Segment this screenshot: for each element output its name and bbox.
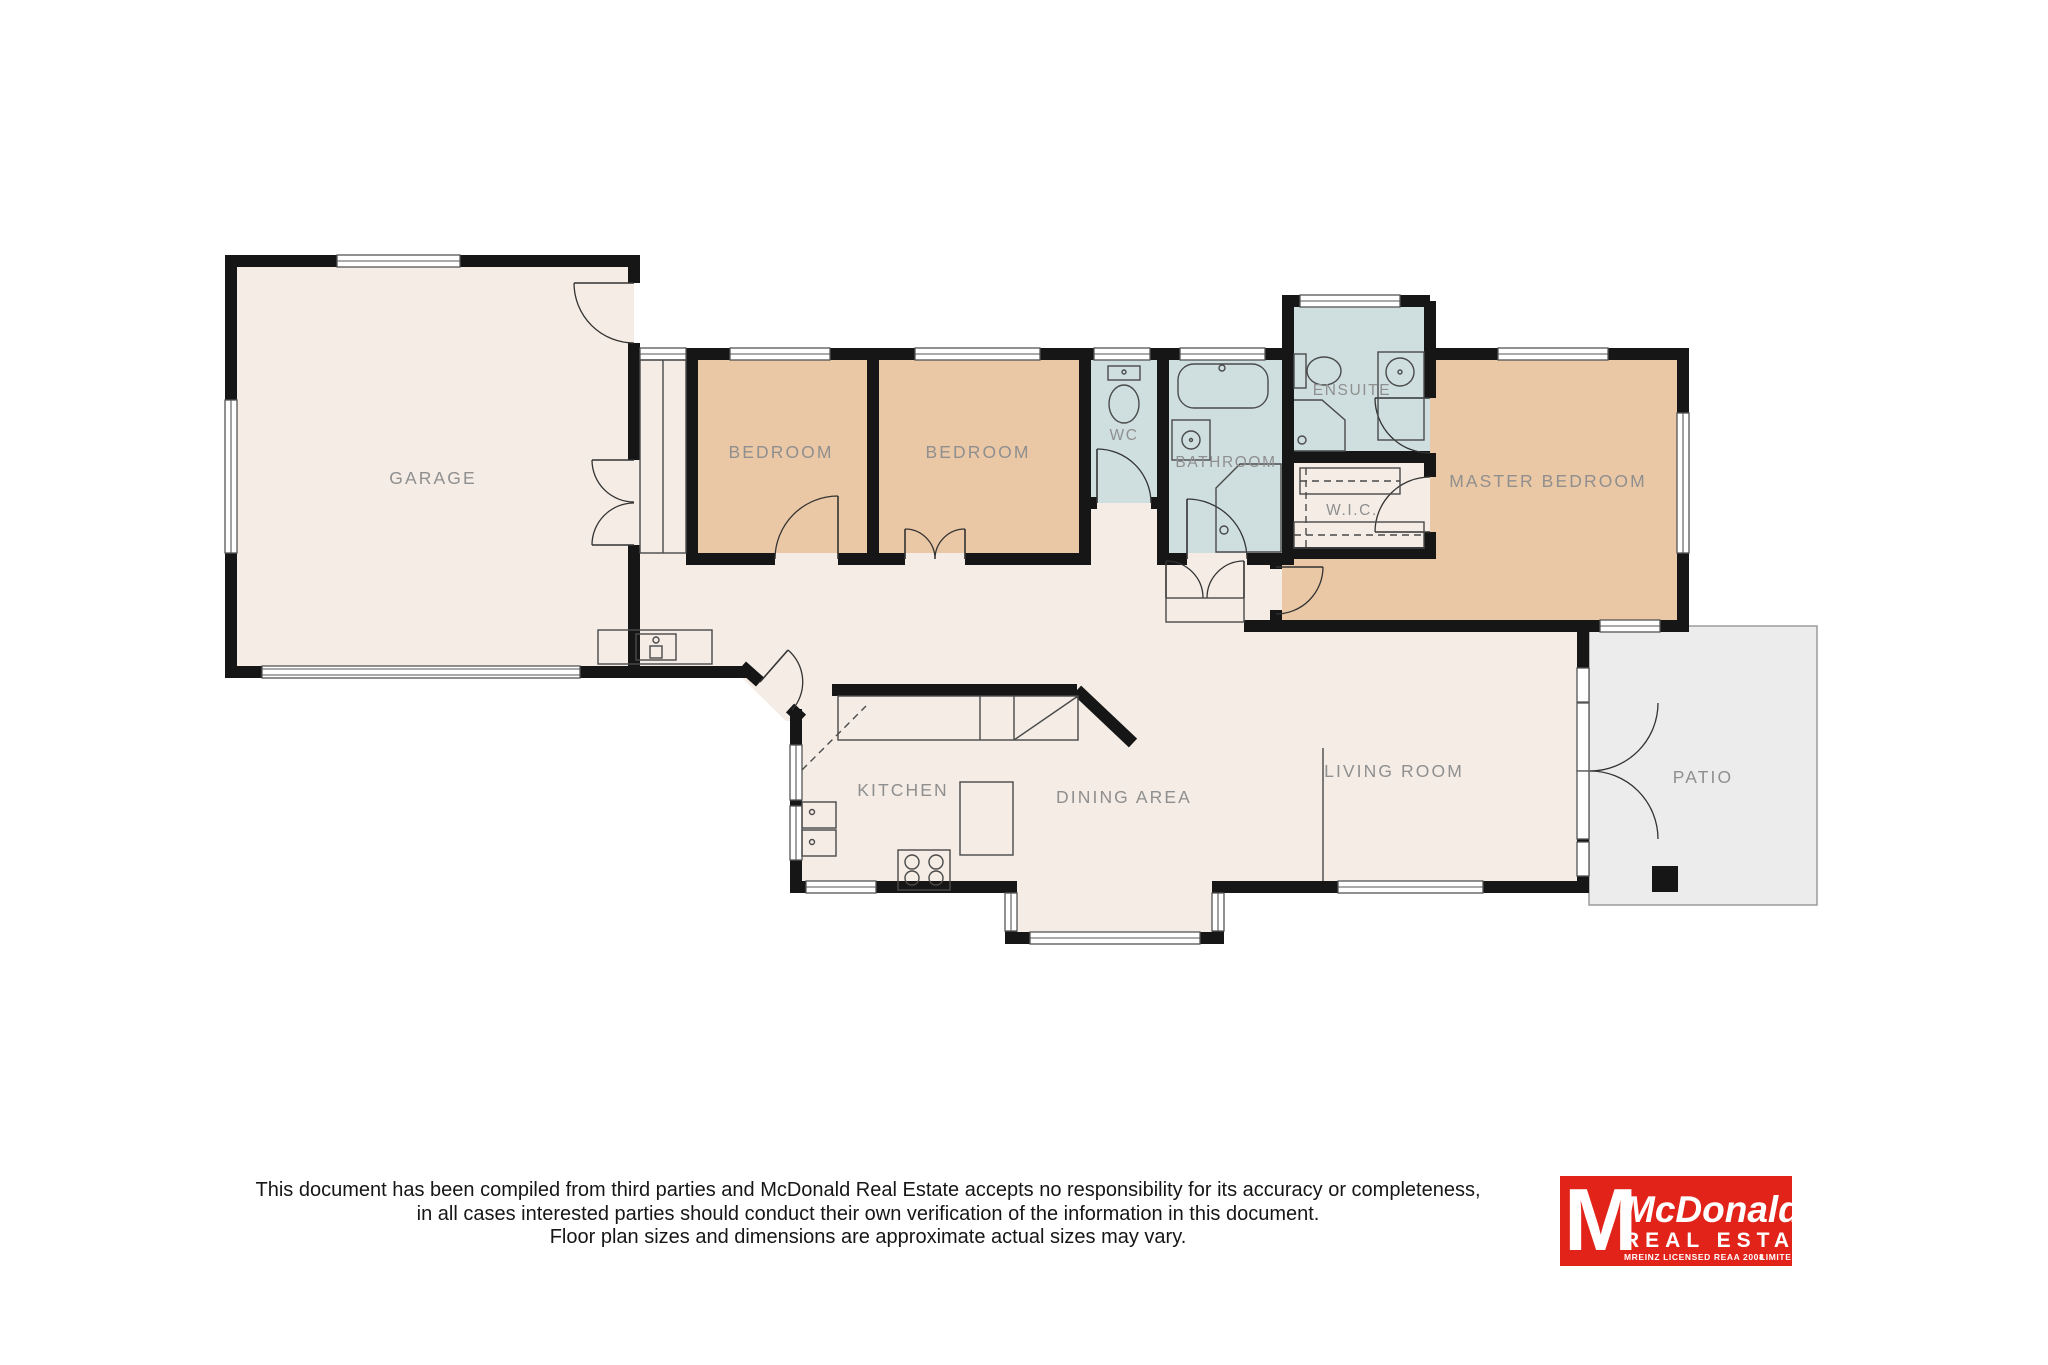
- label-master: MASTER BEDROOM: [1449, 471, 1647, 491]
- window-kitchen-west-upper: [790, 745, 802, 800]
- window-master-top: [1498, 348, 1608, 360]
- window-closet-strip: [640, 348, 686, 360]
- window-bathroom: [1180, 348, 1265, 360]
- window-master-east: [1677, 413, 1689, 553]
- kitchen-dining-living-floor: [802, 626, 1589, 893]
- entry-hall-floor: [634, 553, 802, 721]
- label-bathroom: BATHROOM: [1175, 454, 1276, 471]
- disclaimer: This document has been compiled from thi…: [255, 1179, 1480, 1248]
- label-dining: DINING AREA: [1056, 787, 1192, 807]
- window-bedroom1: [730, 348, 830, 360]
- label-wc: WC: [1109, 427, 1138, 444]
- logo-fine-left: MREINZ LICENSED REAA 2008: [1624, 1252, 1764, 1262]
- logo-fine-right: LIMITED: [1760, 1252, 1798, 1262]
- garage-door: [262, 666, 580, 678]
- patio-post: [1652, 866, 1678, 892]
- room-patio-floor: [1589, 626, 1817, 905]
- disclaimer-line-3: Floor plan sizes and dimensions are appr…: [550, 1226, 1187, 1248]
- window-bay-east: [1212, 893, 1224, 931]
- logo-subtitle: REAL ESTATE: [1624, 1229, 1832, 1252]
- window-bay-bottom: [1030, 932, 1200, 944]
- window-kitchen-west-lower: [790, 806, 802, 860]
- label-bedroom1: BEDROOM: [728, 442, 833, 462]
- label-living: LIVING ROOM: [1324, 761, 1464, 781]
- label-bedroom2: BEDROOM: [925, 442, 1030, 462]
- disclaimer-line-1: This document has been compiled from thi…: [255, 1179, 1480, 1201]
- window-living-east-lower: [1577, 842, 1589, 876]
- window-kitchen-bottom: [806, 881, 876, 893]
- window-living-east-upper: [1577, 668, 1589, 702]
- room-ensuite-floor: [1282, 301, 1430, 457]
- logo-name: McDonald: [1624, 1189, 1802, 1230]
- label-wic: W.I.C.: [1326, 502, 1378, 519]
- window-master-bottom: [1600, 620, 1660, 632]
- window-ensuite: [1300, 295, 1400, 307]
- label-ensuite: ENSUITE: [1313, 382, 1391, 399]
- floor-plan-page: GARAGE BEDROOM BEDROOM WC BATHROOM ENSUI…: [0, 0, 2048, 1365]
- window-wc: [1094, 348, 1150, 360]
- room-garage-floor: [231, 261, 634, 672]
- label-kitchen: KITCHEN: [857, 780, 949, 800]
- window-garage-top: [337, 255, 460, 267]
- disclaimer-line-2: in all cases interested parties should c…: [417, 1203, 1320, 1225]
- floor-plan-canvas: GARAGE BEDROOM BEDROOM WC BATHROOM ENSUI…: [0, 0, 2048, 1365]
- agency-logo: M McDonald REAL ESTATE MREINZ LICENSED R…: [1560, 1170, 1832, 1269]
- window-garage-left: [225, 400, 237, 553]
- label-garage: GARAGE: [389, 468, 476, 488]
- label-patio: PATIO: [1673, 767, 1733, 787]
- window-living-bottom: [1338, 881, 1483, 893]
- window-bedroom2: [915, 348, 1040, 360]
- window-bay-west: [1005, 893, 1017, 931]
